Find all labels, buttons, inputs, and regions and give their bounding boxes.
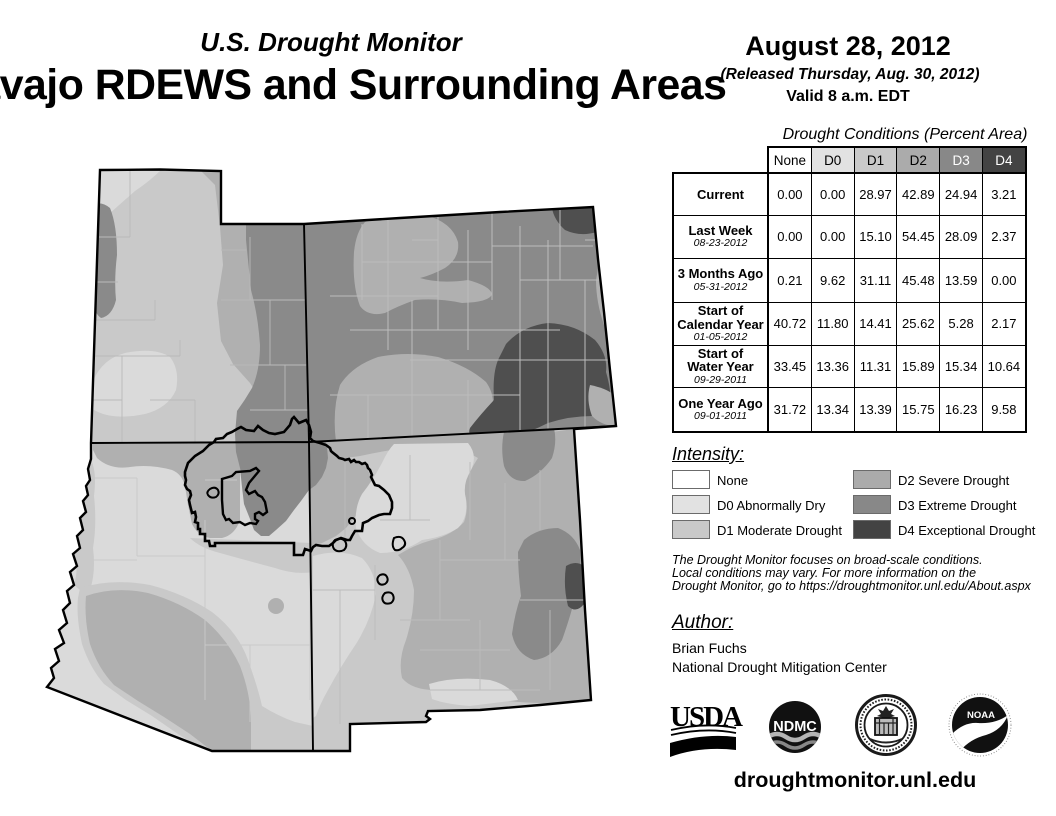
svg-text:NOAA: NOAA xyxy=(967,710,995,721)
svg-text:NDMC: NDMC xyxy=(773,719,817,735)
